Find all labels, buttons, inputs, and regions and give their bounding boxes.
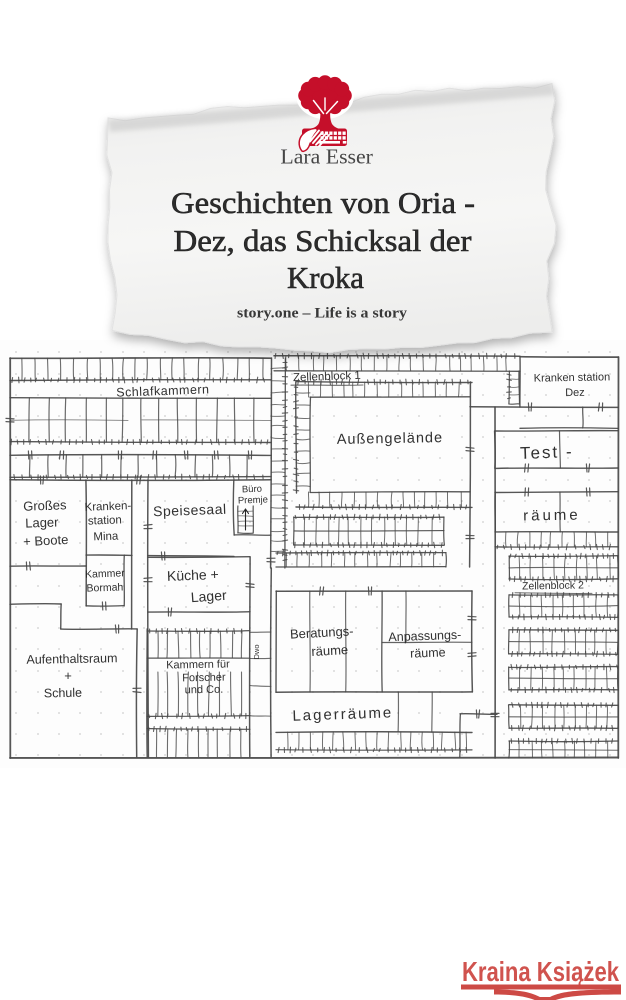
svg-text:Anpassungs-: Anpassungs- <box>388 628 461 645</box>
svg-text:Mina: Mina <box>93 531 119 544</box>
svg-text:Büro: Büro <box>242 484 262 496</box>
svg-text:räume: räume <box>410 645 446 660</box>
svg-text:Kranken-: Kranken- <box>84 500 131 514</box>
svg-text:Lager: Lager <box>190 587 227 605</box>
svg-text:station: station <box>88 514 122 527</box>
svg-text:Geschichten von Oria -: Geschichten von Oria - <box>171 186 475 220</box>
svg-text:Kammer: Kammer <box>85 567 126 580</box>
svg-text:Dez, das Schicksal der: Dez, das Schicksal der <box>174 224 472 258</box>
svg-text:Küche +: Küche + <box>167 566 219 584</box>
svg-text:Außengelände: Außengelände <box>337 430 444 448</box>
svg-text:Dez: Dez <box>565 387 585 399</box>
svg-text:Kroka: Kroka <box>287 261 364 295</box>
svg-text:+: + <box>64 668 72 683</box>
svg-text:Schule: Schule <box>44 686 83 701</box>
svg-text:Kammern für: Kammern für <box>166 658 230 671</box>
svg-text:räume: räume <box>523 506 581 524</box>
svg-text:+ Boote: + Boote <box>23 532 69 549</box>
svg-text:Bormah: Bormah <box>86 581 123 594</box>
svg-text:Forscher: Forscher <box>182 672 226 685</box>
svg-text:Lager: Lager <box>25 514 59 530</box>
svg-text:räume: räume <box>311 642 349 659</box>
svg-text:Speisesaal: Speisesaal <box>153 501 227 520</box>
svg-text:Test -: Test - <box>520 442 574 463</box>
svg-text:Dwo: Dwo <box>252 644 261 659</box>
svg-text:story.one – Life is a story: story.one – Life is a story <box>237 306 408 322</box>
svg-text:Zellenblock 2: Zellenblock 2 <box>522 579 584 592</box>
svg-text:Kraina Książek: Kraina Książek <box>462 956 619 987</box>
svg-text:Premje: Premje <box>238 494 268 506</box>
svg-text:Lara Esser: Lara Esser <box>280 145 373 169</box>
svg-text:Großes: Großes <box>23 497 67 514</box>
svg-text:Lagerräume: Lagerräume <box>292 704 393 725</box>
svg-text:Kranken station: Kranken station <box>534 371 611 384</box>
svg-text:und Co.: und Co. <box>185 684 224 697</box>
svg-text:Aufenthaltsraum: Aufenthaltsraum <box>26 651 117 667</box>
